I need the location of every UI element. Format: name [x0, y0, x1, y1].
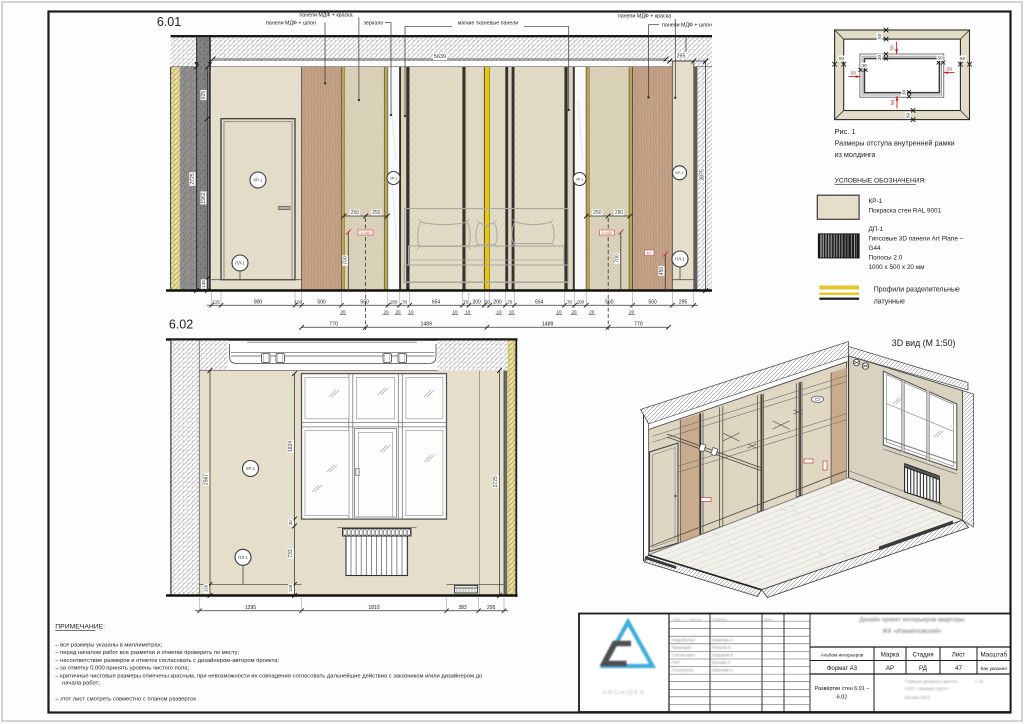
svg-text:Гипсовые 3D панели Art Plane –: Гипсовые 3D панели Art Plane –	[869, 236, 964, 243]
svg-text:Проверил: Проверил	[672, 645, 692, 650]
svg-text:10: 10	[465, 310, 471, 315]
svg-text:50: 50	[890, 100, 896, 106]
svg-text:– все размеры указаны в милли: – все размеры указаны в миллиметрах;	[55, 643, 162, 649]
svg-text:138: 138	[201, 280, 206, 288]
svg-text:ЗР-1: ЗР-1	[576, 177, 584, 181]
svg-text:383: 383	[458, 605, 467, 611]
svg-text:10: 10	[408, 310, 414, 315]
svg-text:1824: 1824	[288, 441, 294, 452]
svg-text:30: 30	[877, 55, 883, 61]
svg-text:295: 295	[679, 300, 688, 306]
svg-text:Профили разделительные: Профили разделительные	[874, 287, 960, 294]
svg-text:панели МДФ + шпон: панели МДФ + шпон	[266, 21, 316, 27]
svg-text:770: 770	[329, 322, 338, 328]
svg-text:50: 50	[484, 300, 490, 305]
svg-text:1962: 1962	[201, 192, 207, 203]
svg-text:770: 770	[634, 322, 643, 328]
svg-text:6.02: 6.02	[169, 318, 193, 332]
svg-text:ЖК «Измайловский»: ЖК «Измайловский»	[882, 628, 942, 635]
svg-text:70: 70	[507, 300, 513, 305]
svg-text:Кол.уч.: Кол.уч.	[690, 618, 702, 622]
svg-text:1000 x 500 x 20 мм: 1000 x 500 x 20 мм	[869, 264, 925, 271]
svg-text:10: 10	[452, 310, 458, 315]
svg-text:Разработал: Разработал	[672, 638, 696, 643]
svg-text:500: 500	[648, 300, 657, 306]
svg-text:2875: 2875	[700, 169, 706, 181]
svg-text:2725: 2725	[493, 476, 499, 487]
svg-text:ДП-1: ДП-1	[869, 226, 884, 233]
svg-text:50: 50	[906, 113, 912, 119]
svg-text:1810: 1810	[368, 605, 379, 611]
svg-text:20: 20	[629, 310, 635, 315]
svg-text:50: 50	[960, 56, 966, 62]
svg-text:150: 150	[390, 300, 398, 305]
svg-text:700: 700	[343, 256, 349, 265]
svg-text:654: 654	[432, 300, 441, 306]
svg-text:200: 200	[472, 300, 481, 306]
svg-text:30: 30	[937, 56, 943, 62]
svg-text:зеркало: зеркало	[364, 21, 384, 27]
svg-text:G44: G44	[869, 245, 882, 252]
svg-text:ООО «Архидея групп»: ООО «Архидея групп»	[905, 686, 949, 691]
svg-text:Развёртки стен 6.01 –: Развёртки стен 6.01 –	[815, 686, 869, 692]
svg-text:500: 500	[317, 300, 326, 306]
svg-text:КР-1: КР-1	[246, 466, 256, 471]
svg-text:50: 50	[890, 45, 896, 51]
svg-text:Иванова А.: Иванова А.	[712, 668, 734, 673]
svg-text:138: 138	[204, 584, 209, 592]
svg-text:ПЛ-1: ПЛ-1	[235, 261, 245, 266]
svg-text:20: 20	[383, 310, 389, 315]
svg-text:Согласовал: Согласовал	[672, 653, 696, 658]
svg-text:Формат А3: Формат А3	[827, 666, 858, 672]
svg-text:ПЛ-1: ПЛ-1	[238, 555, 248, 560]
svg-text:50: 50	[877, 33, 883, 39]
svg-text:0.165: 0.165	[602, 231, 612, 235]
svg-text:Белова У.: Белова У.	[712, 660, 731, 665]
svg-text:20: 20	[340, 310, 346, 315]
svg-text:450: 450	[659, 267, 665, 276]
svg-text:Подпись: Подпись	[712, 618, 727, 622]
svg-text:Изм.: Изм.	[673, 618, 681, 622]
svg-text:Москва 2023: Москва 2023	[905, 695, 930, 700]
svg-text:138: 138	[288, 584, 293, 592]
svg-text:Как указано: Как указано	[981, 666, 1008, 672]
svg-text:70: 70	[463, 300, 469, 305]
svg-text:Полосы 2.0: Полосы 2.0	[869, 255, 903, 262]
svg-text:панели МДФ + шпон: панели МДФ + шпон	[662, 23, 712, 29]
svg-text:Марка: Марка	[881, 652, 900, 659]
svg-text:ГИП: ГИП	[672, 660, 681, 665]
svg-text:Дизайн проект интерьеров кварт: Дизайн проект интерьеров квартиры	[859, 617, 965, 624]
svg-text:900: 900	[254, 300, 263, 306]
svg-text:200: 200	[493, 300, 502, 306]
svg-text:115: 115	[213, 300, 221, 305]
svg-text:мягкие тканевые панели: мягкие тканевые панели	[458, 21, 518, 27]
svg-text:Петров И.: Петров И.	[712, 645, 732, 650]
svg-text:20: 20	[589, 310, 595, 315]
svg-text:625: 625	[201, 91, 207, 100]
svg-text:– этот лист смотреть совместн: – этот лист смотреть совместно с планом …	[55, 696, 196, 702]
svg-text:30: 30	[902, 90, 908, 96]
svg-text:ЕЕ: ЕЕ	[647, 251, 653, 255]
svg-text:Стадия: Стадия	[912, 652, 933, 659]
svg-text:150: 150	[577, 300, 585, 305]
svg-text:Размеры отступа внутренней рам: Размеры отступа внутренней рамки	[835, 139, 955, 148]
svg-text:ARCHIDEA: ARCHIDEA	[602, 691, 645, 697]
svg-text:30: 30	[288, 520, 293, 525]
svg-text:700: 700	[615, 254, 621, 263]
svg-text:5639: 5639	[434, 54, 446, 60]
svg-text:ПРИМЕЧАНИЕ:: ПРИМЕЧАНИЕ:	[55, 624, 105, 631]
svg-text:– критичные чистовые размеры: – критичные чистовые размеры отмечены кр…	[55, 672, 482, 679]
svg-text:50: 50	[947, 66, 953, 72]
svg-text:Масштаб: Масштаб	[981, 652, 1008, 659]
svg-text:1489: 1489	[421, 322, 433, 328]
svg-text:– перед началом работ все раз: – перед началом работ все разметки и отм…	[55, 650, 239, 656]
svg-text:из молдинга: из молдинга	[835, 150, 876, 159]
svg-text:Иванова А.: Иванова А.	[712, 638, 734, 643]
svg-text:250: 250	[593, 210, 602, 216]
svg-text:АР: АР	[886, 665, 894, 672]
svg-text:250: 250	[372, 210, 381, 216]
svg-text:250: 250	[615, 210, 624, 216]
svg-text:панели МДФ + краска: панели МДФ + краска	[618, 14, 671, 20]
svg-text:панели МДФ + краска: панели МДФ + краска	[299, 13, 352, 19]
svg-text:2725: 2725	[190, 173, 196, 185]
svg-text:733: 733	[288, 549, 294, 558]
svg-text:20: 20	[395, 310, 401, 315]
svg-text:10: 10	[556, 310, 562, 315]
svg-text:Лист: Лист	[952, 652, 966, 659]
svg-text:Главный дизайнер проекта: Главный дизайнер проекта	[905, 679, 958, 684]
svg-text:560: 560	[360, 300, 369, 306]
svg-text:Сидоров К.: Сидоров К.	[712, 653, 734, 658]
svg-text:КР-1: КР-1	[675, 170, 684, 175]
svg-text:Альбом интерьеров: Альбом интерьеров	[821, 653, 864, 658]
svg-text:47: 47	[955, 665, 962, 672]
svg-text:Рис. 1: Рис. 1	[835, 127, 856, 136]
svg-text:10: 10	[509, 310, 515, 315]
svg-text:654: 654	[535, 300, 544, 306]
svg-text:УСЛОВНЫЕ ОБОЗНАЧЕНИЯ:: УСЛОВНЫЕ ОБОЗНАЧЕНИЯ:	[835, 178, 927, 185]
svg-text:Н.контроль: Н.контроль	[672, 668, 695, 673]
svg-text:– за отметку 0,000 принять ур: – за отметку 0,000 принять уровень чисто…	[55, 666, 189, 672]
svg-text:6.02: 6.02	[837, 695, 848, 701]
svg-text:ЗР-1: ЗР-1	[390, 176, 398, 180]
svg-text:250: 250	[351, 210, 360, 216]
svg-text:– несоответствие размеров и о: – несоответствие размеров и отметок согл…	[55, 657, 279, 664]
svg-text:латунные: латунные	[874, 299, 905, 306]
svg-text:6.01: 6.01	[157, 15, 181, 29]
svg-text:Дата: Дата	[764, 618, 773, 622]
svg-text:70: 70	[567, 300, 573, 305]
svg-text:50: 50	[839, 56, 845, 62]
svg-text:КР-1: КР-1	[869, 198, 883, 205]
svg-text:3D вид (М 1:50): 3D вид (М 1:50)	[892, 338, 956, 348]
svg-text:2587: 2587	[204, 474, 210, 485]
svg-text:1489: 1489	[542, 322, 554, 328]
svg-text:ПЛ-1: ПЛ-1	[675, 257, 685, 262]
svg-text:КР-1: КР-1	[254, 178, 264, 183]
svg-text:1 25: 1 25	[975, 679, 984, 684]
svg-text:начала работ;: начала работ;	[62, 681, 100, 687]
svg-text:1295: 1295	[245, 605, 256, 611]
svg-text:560: 560	[605, 300, 614, 306]
svg-text:295: 295	[487, 605, 496, 611]
svg-text:Покраска стен RAL 9001: Покраска стен RAL 9001	[869, 208, 942, 215]
svg-text:20: 20	[571, 310, 577, 315]
svg-text:50: 50	[851, 70, 857, 76]
svg-text:30: 30	[861, 63, 867, 69]
svg-text:295: 295	[677, 54, 686, 60]
svg-text:70: 70	[402, 300, 408, 305]
svg-text:0.165: 0.165	[361, 231, 371, 235]
svg-text:РД: РД	[919, 665, 928, 672]
svg-text:10: 10	[496, 310, 502, 315]
svg-text:100: 100	[294, 300, 302, 305]
